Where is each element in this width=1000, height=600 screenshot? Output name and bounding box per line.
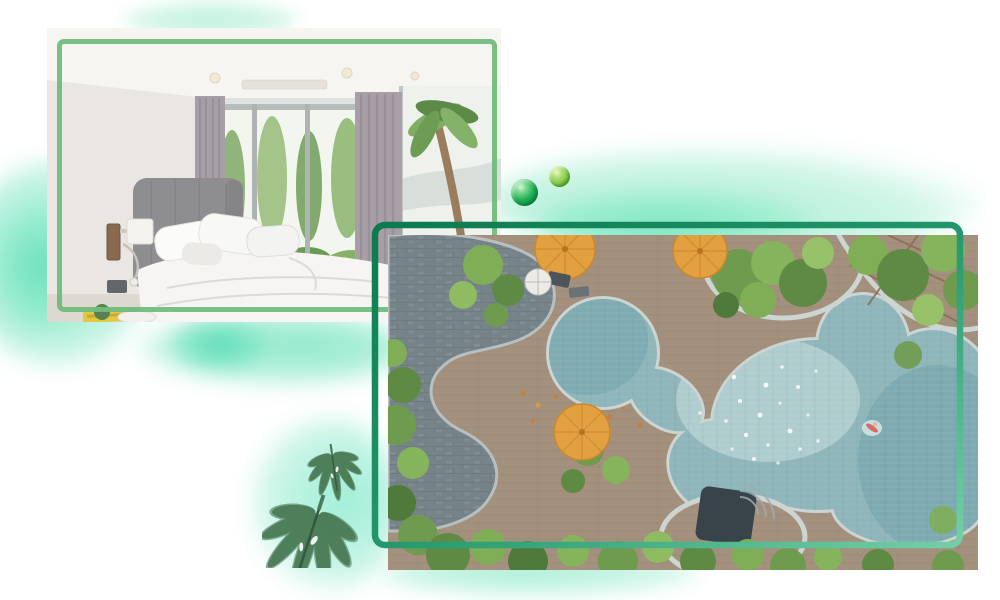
pool-photo bbox=[388, 235, 978, 570]
glass-bead-large bbox=[511, 179, 538, 206]
monstera-leaf-small bbox=[301, 440, 368, 505]
monstera-leaf-large bbox=[262, 479, 374, 568]
watercolor-wash-under-bedroom bbox=[138, 312, 408, 386]
swimmer bbox=[862, 420, 882, 436]
watercolor-wash-under-bedroom-core bbox=[172, 320, 268, 370]
glass-bead-small bbox=[549, 166, 570, 187]
monstera-leaves bbox=[262, 418, 378, 568]
collage-canvas: { "canvas": { "width": 1000, "height": 6… bbox=[0, 0, 1000, 600]
umbrella-bottom-left bbox=[554, 404, 610, 460]
pool-photo-illustration bbox=[388, 235, 978, 570]
